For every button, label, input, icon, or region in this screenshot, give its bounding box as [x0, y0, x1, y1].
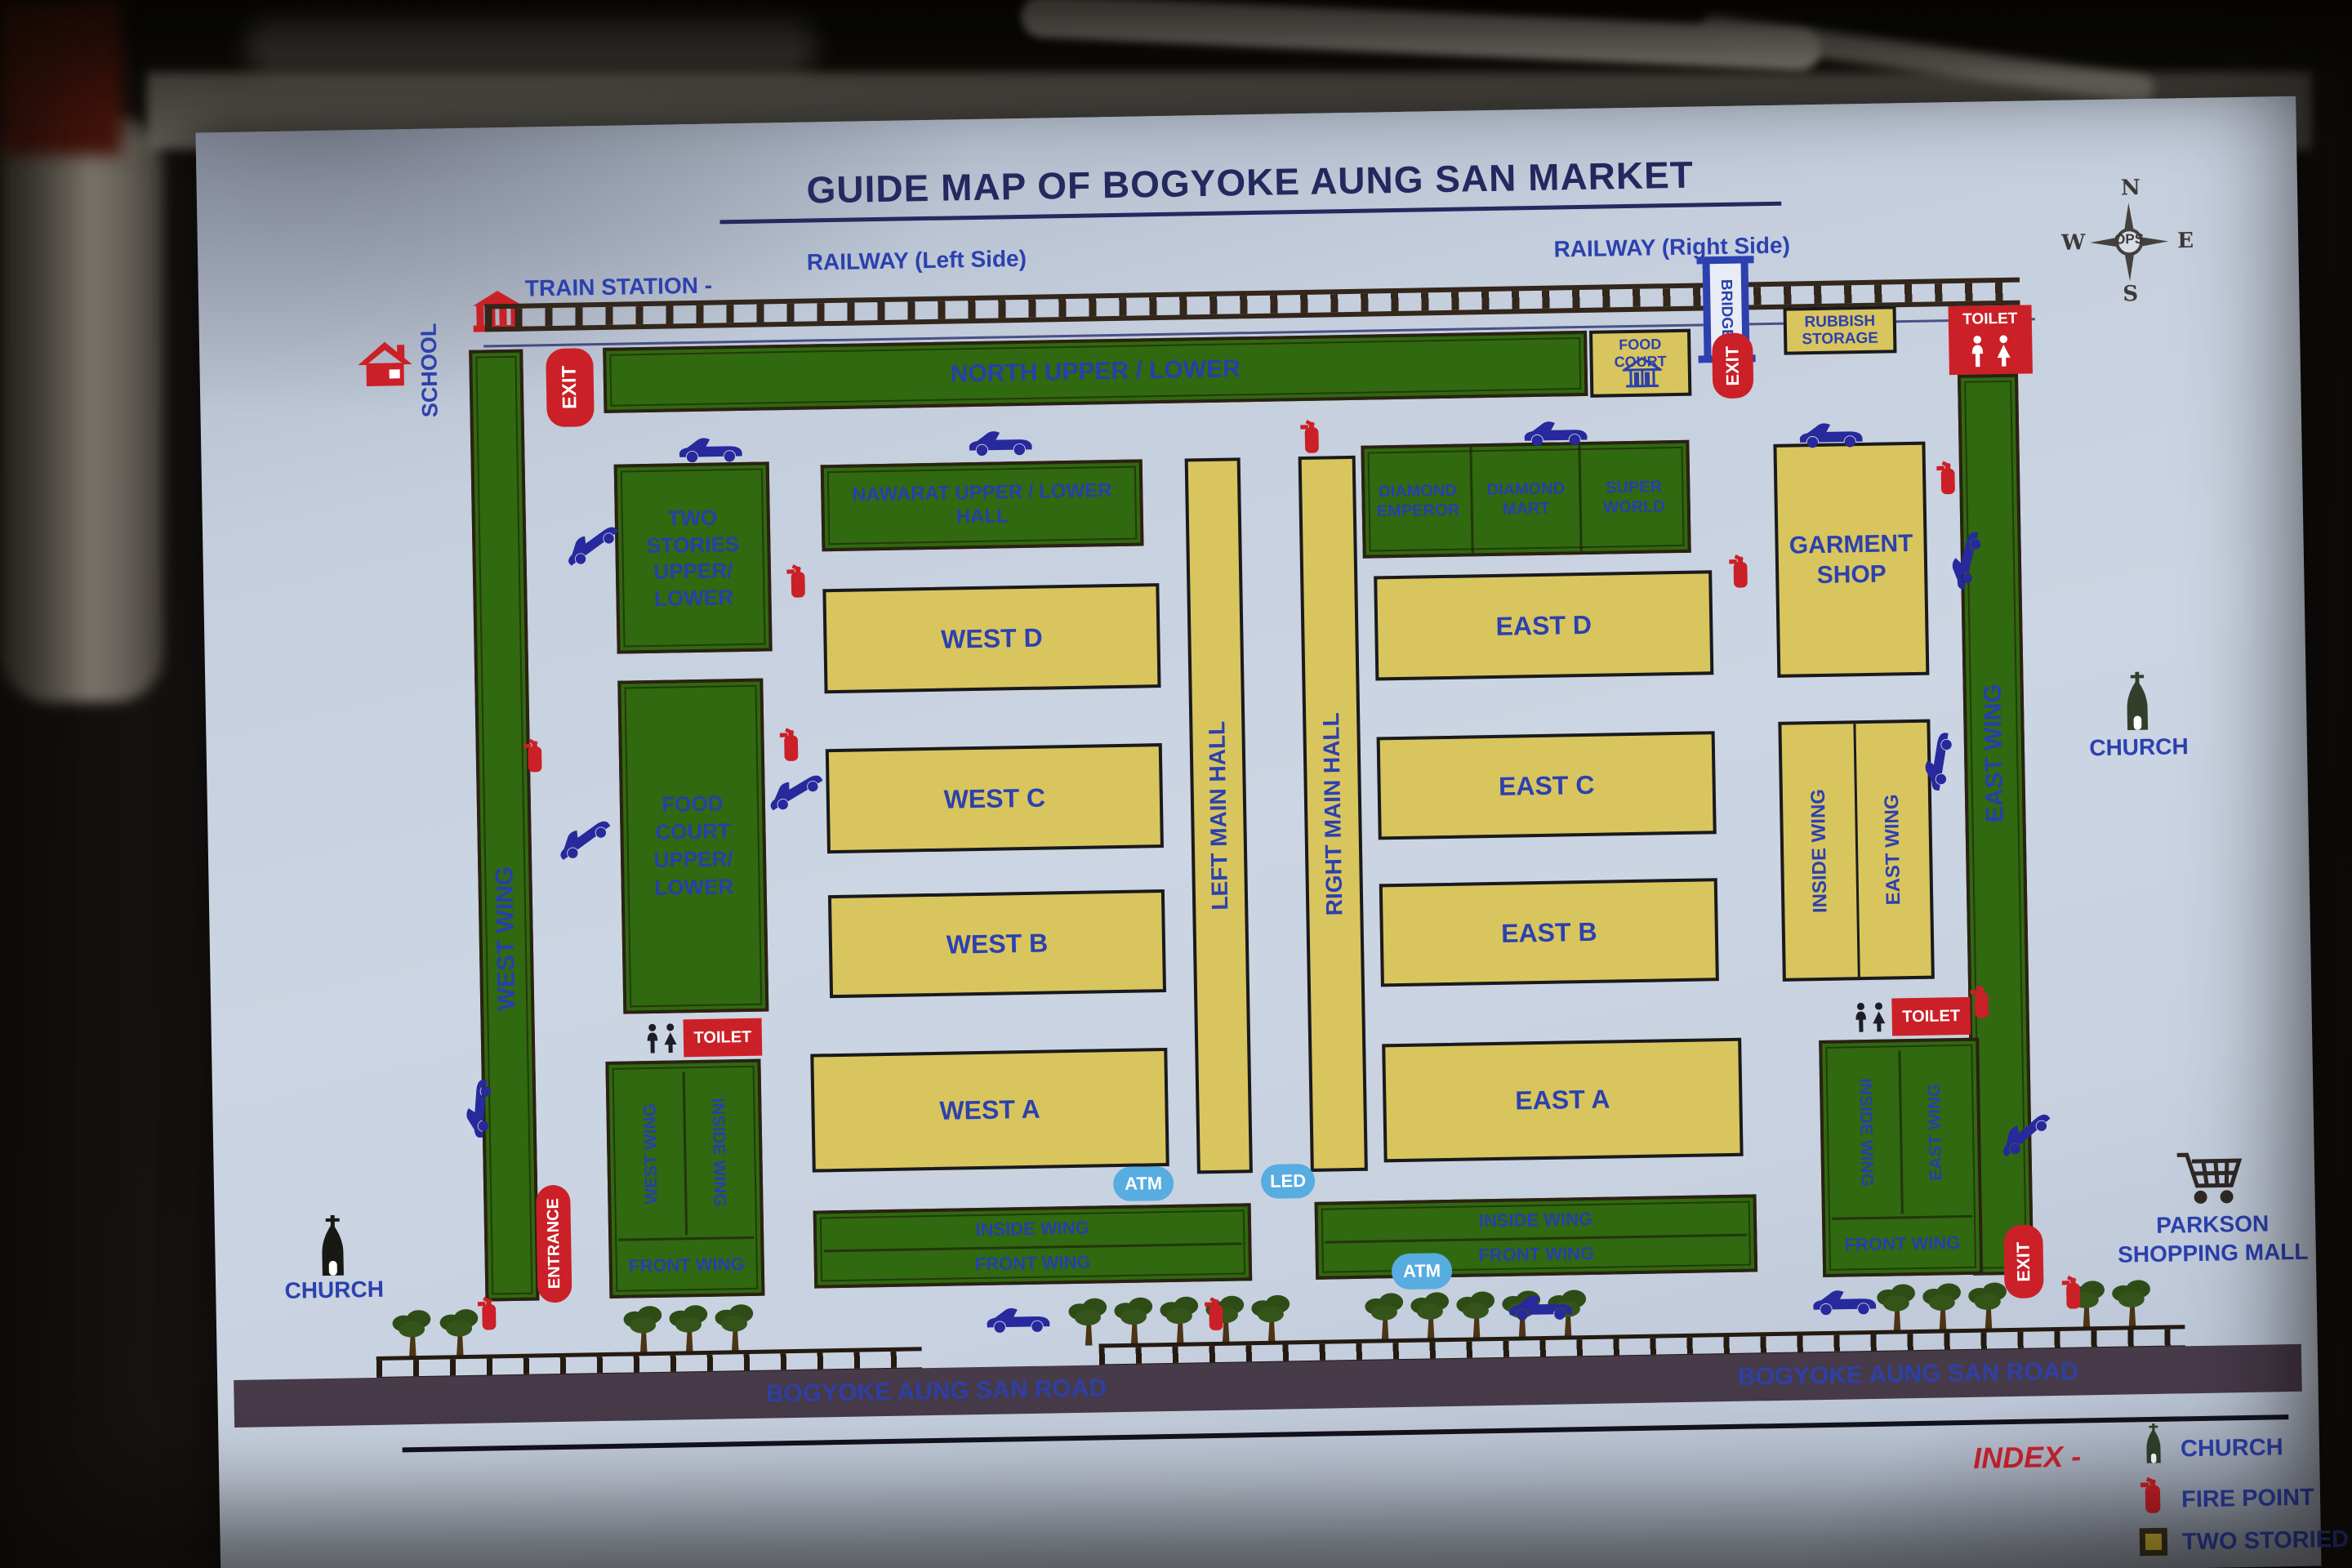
west-c-hall: WEST C	[826, 743, 1164, 853]
man-icon	[1968, 335, 1987, 367]
car-icon	[546, 806, 617, 870]
church-icon	[2116, 670, 2158, 733]
fire-point-icon	[1936, 458, 1960, 496]
fcu-line2: COURT	[653, 817, 733, 846]
car-icon	[675, 432, 746, 465]
east-wing-label: EAST WING	[1980, 684, 2010, 823]
railway-left-label: RAILWAY (Left Side)	[786, 245, 1048, 276]
tree-icon	[1065, 1293, 1110, 1346]
toilet-label: TOILET	[693, 1027, 751, 1047]
west-a-label: WEST A	[939, 1094, 1040, 1126]
church-icon	[2139, 1423, 2167, 1465]
south-bar-west-front-label: FRONT WING	[975, 1252, 1091, 1275]
exit-label: EXIT	[1722, 345, 1744, 385]
church-left-label: CHURCH	[261, 1276, 408, 1304]
toilet-east: TOILET	[1891, 997, 1971, 1036]
woman-icon	[1870, 1002, 1887, 1033]
guide-map-board: GUIDE MAP OF BOGYOKE AUNG SAN MARKET N S…	[195, 96, 2321, 1568]
background-pillar	[0, 114, 163, 702]
diamond-mart-line2: MART	[1487, 498, 1566, 519]
nawarat-line1: NAWARAT UPPER / LOWER	[852, 479, 1112, 507]
southeast-east-wing-label: EAST WING	[1925, 1083, 1946, 1180]
southwest-columns: WEST WING INSIDE WING	[617, 1071, 752, 1236]
west-c-label: WEST C	[943, 782, 1045, 814]
two-stories-building: TWO STORIES UPPER/ LOWER	[614, 461, 773, 653]
inside-wing-cell: INSIDE WING	[1781, 724, 1857, 978]
plaster-patch	[245, 16, 817, 73]
southwest-inside-wing-label: INSIDE WING	[707, 1098, 728, 1207]
southwest-west-wing-col: WEST WING	[617, 1071, 685, 1236]
west-d-hall: WEST D	[822, 583, 1160, 693]
right-main-hall: RIGHT MAIN HALL	[1298, 456, 1368, 1172]
southeast-inside-wing-col: INSIDE WING	[1830, 1050, 1900, 1214]
east-b-label: EAST B	[1501, 916, 1597, 948]
index-two-storied-label: TWO STORIED BUILDING	[2182, 1524, 2352, 1556]
east-d-label: EAST D	[1495, 609, 1592, 641]
fire-point-icon	[1205, 1294, 1228, 1332]
curtain-corner	[0, 0, 122, 155]
nawarat-hall-label: NAWARAT UPPER / LOWER HALL	[852, 479, 1112, 531]
south-bar-west: INSIDE WING FRONT WING	[813, 1203, 1253, 1288]
tree-icon	[1248, 1290, 1293, 1343]
tree-icon	[1361, 1288, 1406, 1341]
tree-icon	[1453, 1286, 1498, 1339]
man-icon	[1852, 1002, 1869, 1033]
diamond-mart-cell: DIAMOND MART	[1470, 445, 1580, 553]
fire-point-icon	[1300, 417, 1324, 455]
church-icon	[311, 1214, 354, 1277]
southwest-wing-building: WEST WING INSIDE WING FRONT WING	[605, 1059, 764, 1298]
parkson-label: PARKSON SHOPPING MALL	[2108, 1208, 2318, 1268]
left-main-hall-label: LEFT MAIN HALL	[1204, 721, 1233, 911]
southeast-wing-building: INSIDE WING EAST WING FRONT WING	[1819, 1038, 1983, 1277]
fire-point-icon	[1970, 982, 1993, 1019]
toilet-label: TOILET	[1949, 310, 2032, 329]
diamond-mart-line1: DIAMOND	[1486, 479, 1565, 500]
car-icon	[460, 1076, 495, 1143]
car-icon	[1504, 1290, 1575, 1323]
north-upper-lower-building: NORTH UPPER / LOWER	[603, 331, 1588, 413]
south-bar-east: INSIDE WING FRONT WING	[1315, 1194, 1758, 1279]
super-world-line2: WORLD	[1603, 497, 1665, 517]
two-storied-building-icon	[2140, 1528, 2168, 1557]
two-stories-label: TWO STORIES UPPER/ LOWER	[646, 504, 741, 612]
exit-pill-northeast: EXIT	[1712, 332, 1753, 399]
two-stories-line4: LOWER	[647, 584, 740, 612]
west-b-label: WEST B	[946, 928, 1048, 960]
compass-east: E	[2177, 229, 2194, 253]
inside-wing-label: INSIDE WING	[1807, 789, 1833, 913]
toilet-label: TOILET	[1902, 1007, 1960, 1027]
tree-icon	[437, 1304, 482, 1357]
inside-east-wing-building: INSIDE WING EAST WING	[1778, 719, 1935, 982]
east-wing-cell-label: EAST WING	[1881, 794, 1905, 905]
nawarat-hall-building: NAWARAT UPPER / LOWER HALL	[821, 459, 1144, 551]
food-court-building: FOOD COURT	[1589, 329, 1691, 398]
east-c-label: EAST C	[1499, 769, 1595, 801]
church-right-label: CHURCH	[2074, 733, 2205, 762]
road-name-east: BOGYOKE AUNG SAN ROAD	[1622, 1356, 2194, 1393]
west-a-hall: WEST A	[810, 1048, 1169, 1173]
garment-line1: GARMENT	[1788, 528, 1913, 560]
atm-label: ATM	[1403, 1260, 1441, 1282]
car-icon	[964, 425, 1036, 459]
two-stories-line1: TWO	[646, 504, 739, 532]
car-icon	[1520, 416, 1591, 449]
southeast-east-wing-col: EAST WING	[1898, 1049, 1971, 1214]
tree-icon	[2109, 1275, 2154, 1328]
parkson-line2: SHOPPING MALL	[2109, 1236, 2319, 1268]
index-church-label: CHURCH	[2180, 1434, 2283, 1463]
tree-icon	[1965, 1277, 2010, 1330]
south-bar-west-row2: FRONT WING	[817, 1241, 1249, 1285]
rubbish-storage-label: RUBBISH STORAGE	[1802, 312, 1878, 348]
road-name-west: BOGYOKE AUNG SAN ROAD	[577, 1371, 1295, 1411]
photo-of-market-guide-map: GUIDE MAP OF BOGYOKE AUNG SAN MARKET N S…	[0, 0, 2352, 1568]
car-icon	[1795, 417, 1866, 451]
fire-point-icon	[477, 1294, 501, 1331]
southeast-columns: INSIDE WING EAST WING	[1830, 1049, 1970, 1215]
west-wing-building: WEST WING	[469, 350, 539, 1302]
east-wing-cell: EAST WING	[1853, 723, 1931, 978]
train-station-label: TRAIN STATION -	[525, 273, 713, 302]
garment-shop-label: GARMENT SHOP	[1788, 528, 1913, 591]
east-c-hall: EAST C	[1377, 731, 1717, 840]
atm-pill-east: ATM	[1392, 1253, 1453, 1290]
compass-center-text: OPS	[2109, 231, 2149, 248]
diamond-emperor-line2: EMPEROR	[1377, 501, 1460, 522]
fire-point-icon	[779, 725, 803, 763]
garment-line2: SHOP	[1789, 559, 1913, 591]
east-b-hall: EAST B	[1379, 878, 1719, 987]
fcu-line3: UPPER/	[653, 845, 733, 874]
southwest-front-wing-label: FRONT WING	[612, 1254, 761, 1277]
index-fire-label: FIRE POINT	[2181, 1485, 2314, 1514]
two-stories-line2: STORIES	[646, 531, 739, 559]
rubbish-line2: STORAGE	[1802, 330, 1878, 349]
fcu-line4: LOWER	[654, 873, 733, 902]
diamond-block-building: DIAMOND EMPEROR DIAMOND MART SUPER WORLD	[1361, 440, 1690, 559]
compass-south: S	[2123, 282, 2138, 306]
tree-icon	[1873, 1279, 1918, 1332]
man-icon	[644, 1023, 661, 1054]
south-bar-east-front-label: FRONT WING	[1478, 1243, 1594, 1266]
led-pill: LED	[1261, 1164, 1316, 1199]
compass-north: N	[2121, 176, 2140, 200]
tree-icon	[621, 1301, 666, 1354]
exit-label: EXIT	[559, 366, 582, 410]
tree-icon	[666, 1300, 711, 1353]
southwest-west-wing-label: WEST WING	[640, 1103, 661, 1205]
fire-point-icon	[1729, 551, 1753, 589]
east-d-hall: EAST D	[1374, 570, 1713, 680]
fcu-line1: FOOD	[653, 791, 732, 819]
west-wing-label: WEST WING	[491, 866, 521, 1011]
woman-icon	[1994, 335, 2013, 367]
atm-label: ATM	[1125, 1173, 1162, 1195]
two-stories-line3: UPPER/	[647, 557, 740, 585]
right-main-hall-label: RIGHT MAIN HALL	[1318, 712, 1347, 915]
tree-icon	[1156, 1291, 1201, 1344]
east-a-label: EAST A	[1515, 1085, 1610, 1116]
tree-icon	[1407, 1287, 1452, 1340]
south-bar-west-inside-label: INSIDE WING	[975, 1218, 1089, 1241]
food-court-upper-label: FOOD COURT UPPER/ LOWER	[653, 791, 733, 902]
toilet-northeast: TOILET	[1949, 305, 2033, 375]
map-title: GUIDE MAP OF BOGYOKE AUNG SAN MARKET	[719, 151, 1781, 225]
rubbish-line1: RUBBISH	[1802, 312, 1878, 331]
tree-icon	[712, 1299, 757, 1352]
left-main-hall: LEFT MAIN HALL	[1185, 457, 1253, 1174]
led-label: LED	[1270, 1170, 1306, 1192]
super-world-cell: SUPER WORLD	[1578, 443, 1688, 551]
car-icon	[1808, 1285, 1879, 1318]
diamond-emperor-line1: DIAMOND	[1376, 481, 1459, 502]
fire-point-icon	[786, 562, 810, 599]
exit-pill-northwest: EXIT	[546, 348, 595, 427]
compass-rose: N S W E OPS	[2067, 180, 2192, 305]
exit-label: EXIT	[2013, 1241, 2035, 1281]
school-icon	[356, 338, 414, 390]
atm-pill-west: ATM	[1113, 1166, 1174, 1201]
car-icon	[758, 759, 830, 820]
south-bar-east-inside-label: INSIDE WING	[1479, 1209, 1593, 1232]
tree-icon	[390, 1305, 434, 1358]
toilet-west: TOILET	[684, 1018, 763, 1058]
fire-point-icon	[523, 736, 546, 773]
west-d-label: WEST D	[941, 622, 1043, 654]
entrance-label: ENTRANCE	[544, 1198, 564, 1290]
exit-pill-southeast: EXIT	[2003, 1224, 2044, 1298]
fire-point-icon	[2140, 1474, 2166, 1516]
bridge-label: BRIDGE	[1717, 279, 1735, 340]
index-heading: INDEX -	[1973, 1440, 2082, 1476]
food-court-upper-building: FOOD COURT UPPER/ LOWER	[617, 679, 768, 1014]
garment-shop-building: GARMENT SHOP	[1773, 442, 1929, 678]
southwest-inside-wing-col: INSIDE WING	[682, 1071, 752, 1235]
railway-right-label: RAILWAY (Right Side)	[1537, 232, 1807, 263]
tree-icon	[1919, 1278, 1964, 1331]
diamond-emperor-cell: DIAMOND EMPEROR	[1364, 447, 1472, 555]
school-label: SCHOOL	[416, 323, 443, 417]
north-upper-lower-label: NORTH UPPER / LOWER	[950, 355, 1241, 388]
super-world-line1: SUPER	[1603, 477, 1665, 497]
southeast-inside-wing-label: INSIDE WING	[1855, 1078, 1876, 1187]
south-bar-east-row2: FRONT WING	[1318, 1232, 1754, 1276]
compass-west: W	[2061, 230, 2086, 256]
west-b-hall: WEST B	[828, 889, 1166, 998]
entrance-pill: ENTRANCE	[536, 1185, 572, 1303]
east-a-hall: EAST A	[1382, 1038, 1743, 1163]
fire-point-icon	[2061, 1272, 2085, 1310]
woman-icon	[662, 1022, 679, 1053]
rubbish-storage-building: RUBBISH STORAGE	[1784, 305, 1897, 354]
shopping-cart-icon	[2172, 1143, 2246, 1209]
tree-icon	[1111, 1292, 1156, 1345]
pavilion-icon	[1623, 355, 1663, 390]
southeast-front-wing-label: FRONT WING	[1825, 1232, 1979, 1256]
car-icon	[982, 1302, 1053, 1335]
nawarat-line2: HALL	[852, 503, 1112, 531]
parkson-line1: PARKSON	[2108, 1208, 2318, 1240]
